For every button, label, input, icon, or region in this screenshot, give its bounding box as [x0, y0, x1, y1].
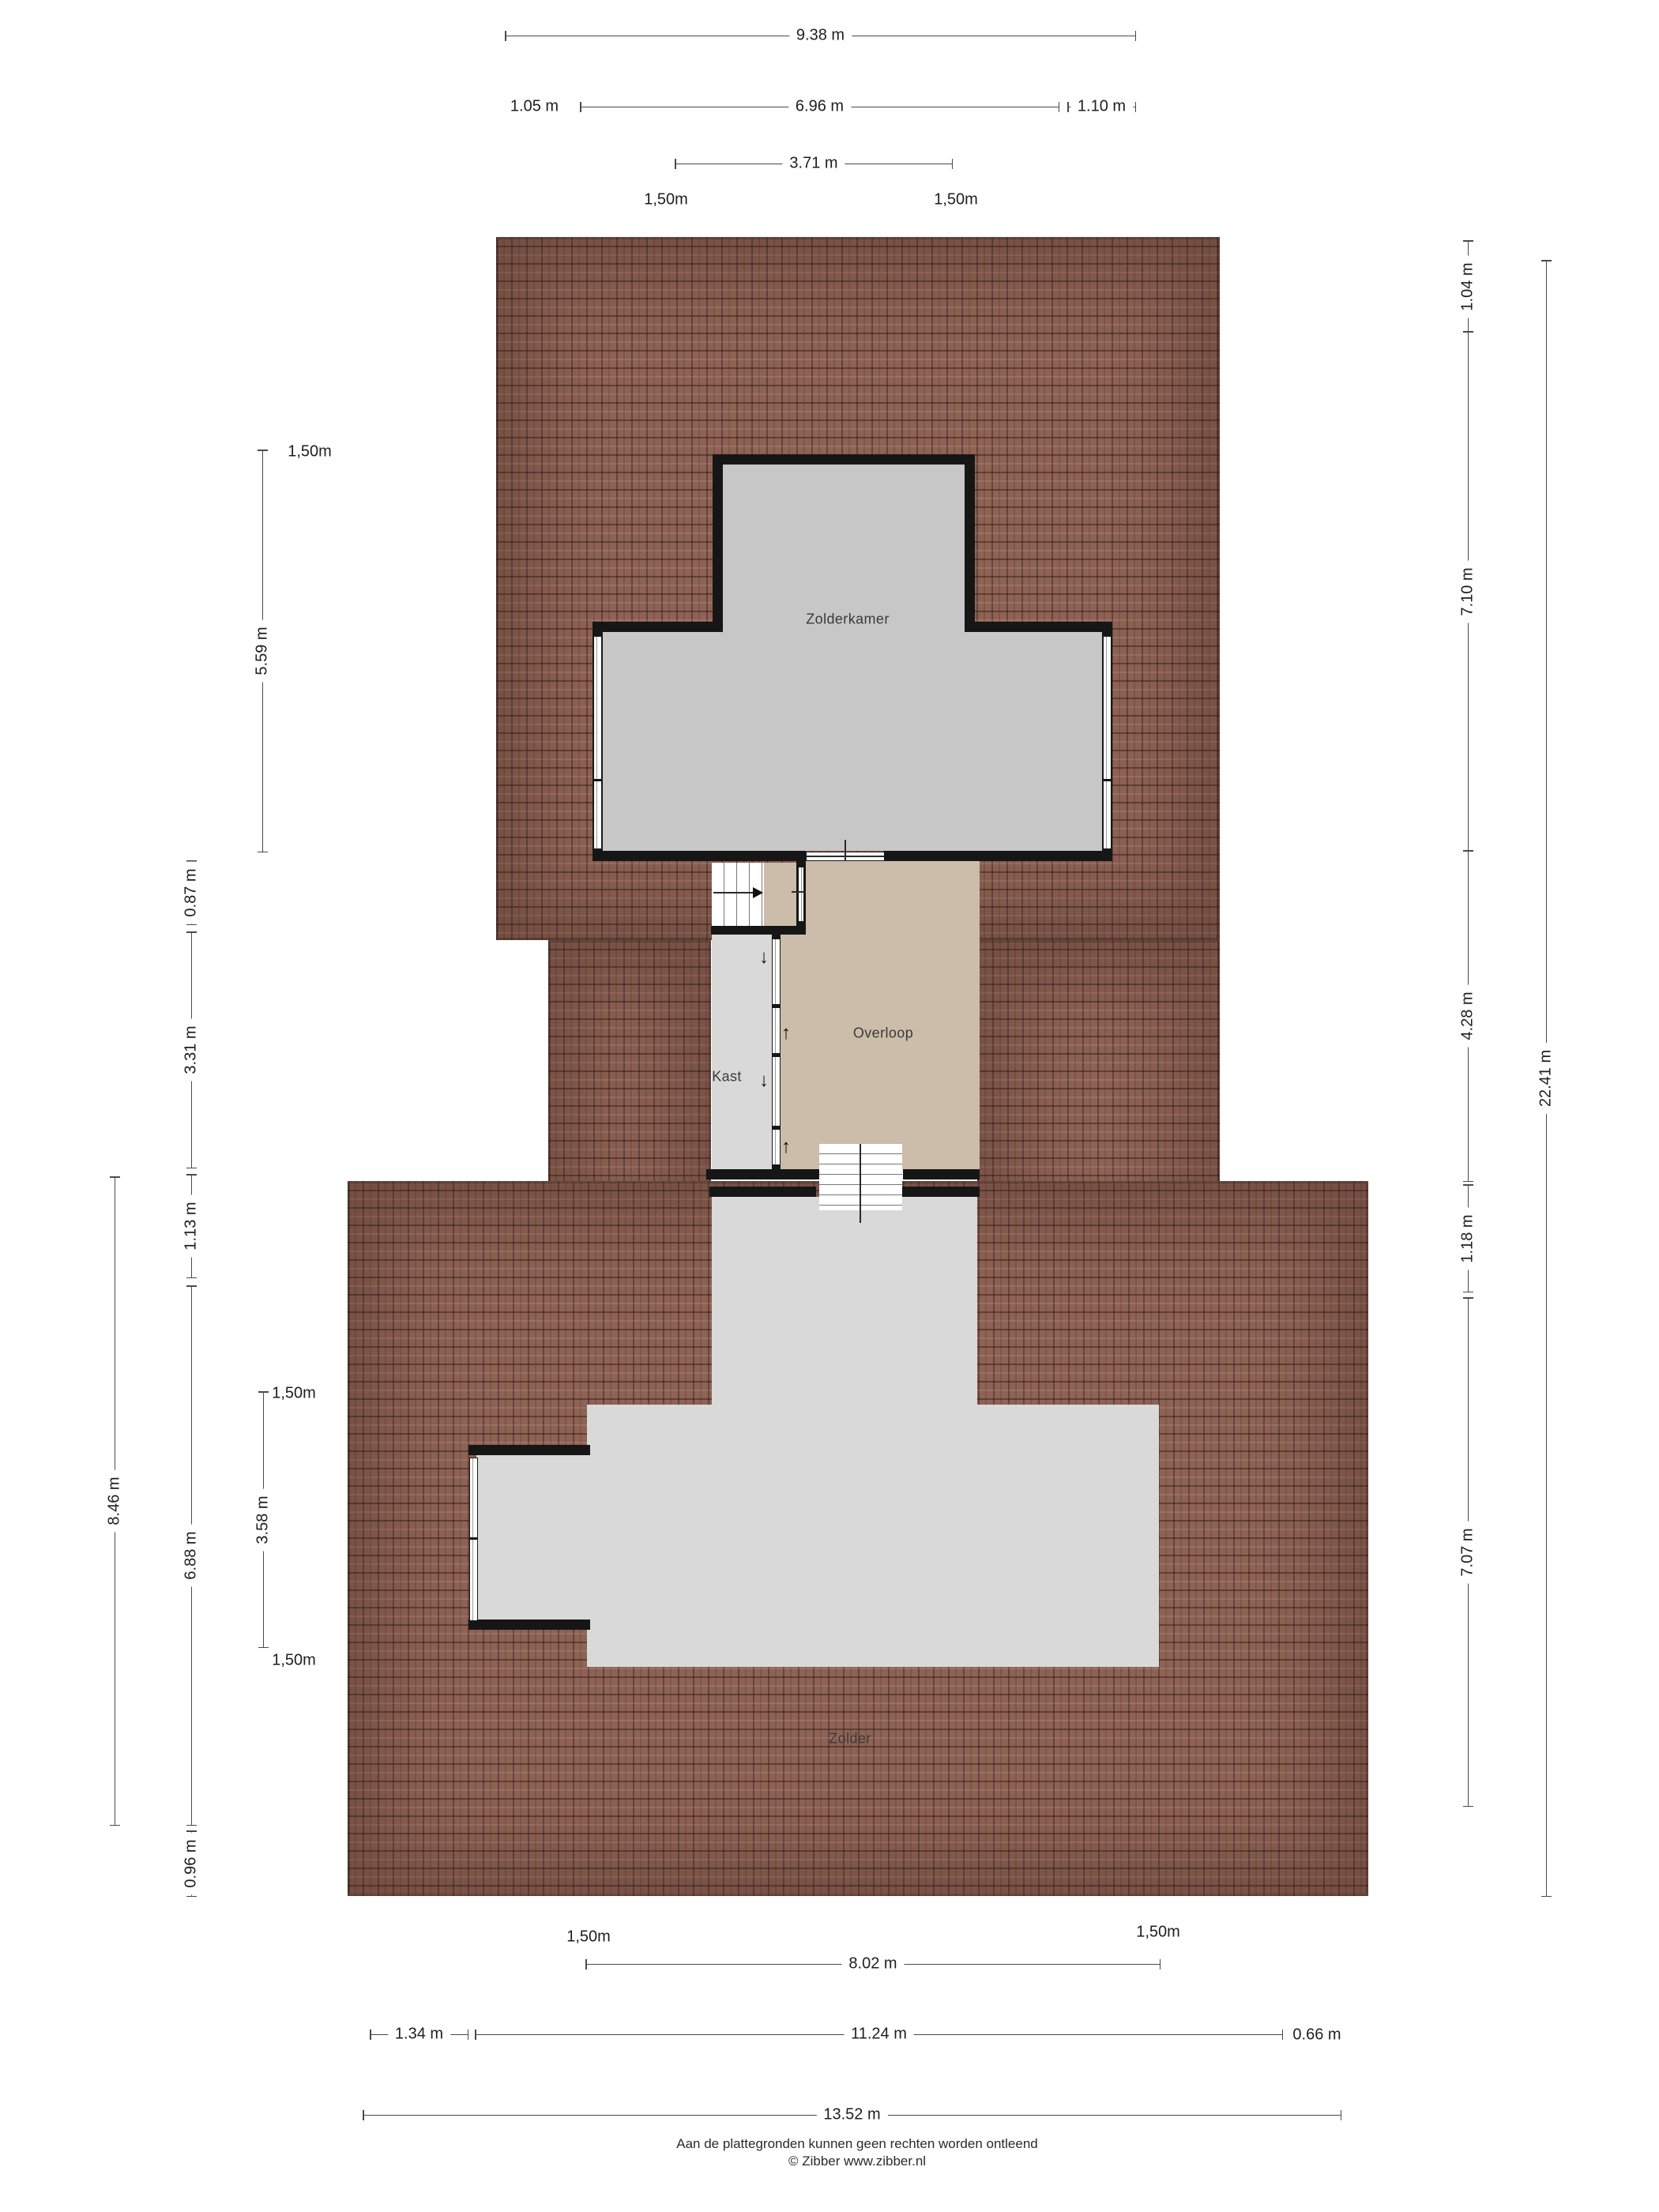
upper-staircase-direction-line	[713, 892, 754, 893]
zolder-floor-main	[587, 1405, 1159, 1667]
arrow-up-icon-2: ↑	[781, 1138, 791, 1157]
zolderkamer-window-left-divider	[593, 779, 602, 781]
dim-top-dormer-width: 3.71 m	[675, 164, 952, 164]
dim-bottom-8-02: 8.02 m	[586, 1964, 1160, 1965]
footer-disclaimer: Aan de plattegronden kunnen geen rechten…	[676, 2136, 1037, 2152]
contour-label-left-mid: 1,50m	[272, 1385, 316, 1403]
landing-door-window	[798, 867, 804, 922]
zolderkamer-bottom-wall-right	[883, 851, 1112, 861]
dim-right-1-04: 1.04 m	[1468, 241, 1469, 332]
zolderkamer-narrow-left-wall	[713, 465, 723, 622]
kast-floor	[712, 935, 772, 1169]
annex-top-wall	[468, 1445, 590, 1455]
dim-right-7-07: 7.07 m	[1468, 1298, 1469, 1806]
zolderkamer-top-wall	[713, 454, 975, 465]
upper-staircase-arrow-icon	[753, 887, 763, 898]
overloop-floor-left	[781, 935, 806, 1169]
dim-bottom-1-34: 1.34 m	[371, 2034, 468, 2035]
overloop-bottom-wall-right	[903, 1169, 980, 1179]
divider-cap-mid1	[772, 1004, 781, 1008]
lower-staircase-center-line	[860, 1144, 861, 1223]
dim-bottom-0-66-label: 0.66 m	[1292, 2026, 1341, 2045]
zolderkamer-shoulder-wall-left	[592, 622, 723, 632]
zolderkamer-floor-wide	[603, 632, 1102, 851]
dim-top-room-width: 6.96 m	[581, 107, 1059, 107]
overloop-label: Overloop	[853, 1025, 913, 1042]
dim-left-3-58: 3.58 m	[263, 1392, 264, 1647]
dim-bottom-total: 13.52 m	[363, 2115, 1341, 2116]
zolderkamer-bottom-wall-left	[592, 851, 806, 861]
overloop-floor-upper	[806, 861, 980, 1169]
annex-window-divider	[469, 1537, 478, 1540]
zolderkamer-window-right	[1103, 636, 1112, 849]
divider-cap-top	[772, 935, 781, 939]
overloop-bottom-wall-left	[706, 1169, 819, 1179]
dim-right-total: 22.41 m	[1546, 261, 1547, 1896]
contour-label-top-right: 1,50m	[934, 191, 978, 209]
arrow-up-icon-1: ↑	[781, 1024, 791, 1043]
contour-label-left-bottom: 1,50m	[272, 1652, 316, 1670]
dim-top-left-offset: 1.05 m	[506, 107, 563, 107]
zolderkamer-floor-narrow	[723, 465, 965, 636]
zolder-top-wall-left	[709, 1187, 816, 1197]
dim-top-right-offset: 1.10 m	[1068, 107, 1135, 107]
dim-left-8-46: 8.46 m	[115, 1177, 115, 1825]
contour-label-top-left: 1,50m	[644, 191, 688, 209]
dim-right-7-10: 7.10 m	[1468, 332, 1469, 851]
annex-bottom-wall	[468, 1619, 590, 1630]
dim-right-4-28: 4.28 m	[1468, 851, 1469, 1181]
kast-label: Kast	[712, 1069, 742, 1085]
divider-cap-mid2	[772, 1053, 781, 1057]
divider-cap-mid3	[772, 1126, 781, 1130]
zolderkamer-window-right-divider	[1103, 779, 1112, 781]
dim-left-6-88: 6.88 m	[191, 1286, 192, 1825]
dim-top-total: 9.38 m	[506, 36, 1135, 36]
dim-left-3-31: 3.31 m	[191, 932, 192, 1168]
dim-left-0-96: 0.96 m	[191, 1831, 192, 1896]
stairs-bottom-wall	[711, 926, 806, 935]
zolderkamer-label: Zolderkamer	[806, 611, 889, 628]
zolder-floor-corridor	[712, 1197, 977, 1406]
contour-label-bottom-left: 1,50m	[566, 1928, 611, 1947]
dim-bottom-11-24: 11.24 m	[476, 2034, 1282, 2035]
arrow-down-icon-1: ↓	[759, 948, 769, 967]
zolderkamer-shoulder-wall-right	[965, 622, 1112, 632]
arrow-down-icon-2: ↓	[759, 1071, 769, 1090]
contour-label-left-top: 1,50m	[288, 443, 332, 461]
zolder-floor-annex	[476, 1455, 587, 1619]
zolderkamer-narrow-right-wall	[965, 465, 975, 622]
footer-copyright: © Zibber www.zibber.nl	[788, 2154, 926, 2169]
zolder-label: Zolder	[829, 1731, 871, 1747]
dim-left-0-87: 0.87 m	[191, 861, 192, 924]
contour-label-bottom-right: 1,50m	[1136, 1924, 1180, 1942]
zolder-top-wall-right	[902, 1187, 980, 1197]
dim-left-1-13: 1.13 m	[191, 1175, 192, 1277]
floorplan-canvas: Zolderkamer Kast Overloop ↓ ↑ ↓ ↑ Zolder	[0, 0, 1659, 2212]
dim-left-5-59: 5.59 m	[262, 450, 263, 852]
dim-right-1-18: 1.18 m	[1468, 1185, 1469, 1292]
stair-landing-floor	[764, 863, 796, 926]
zolderkamer-window-left	[593, 636, 602, 849]
